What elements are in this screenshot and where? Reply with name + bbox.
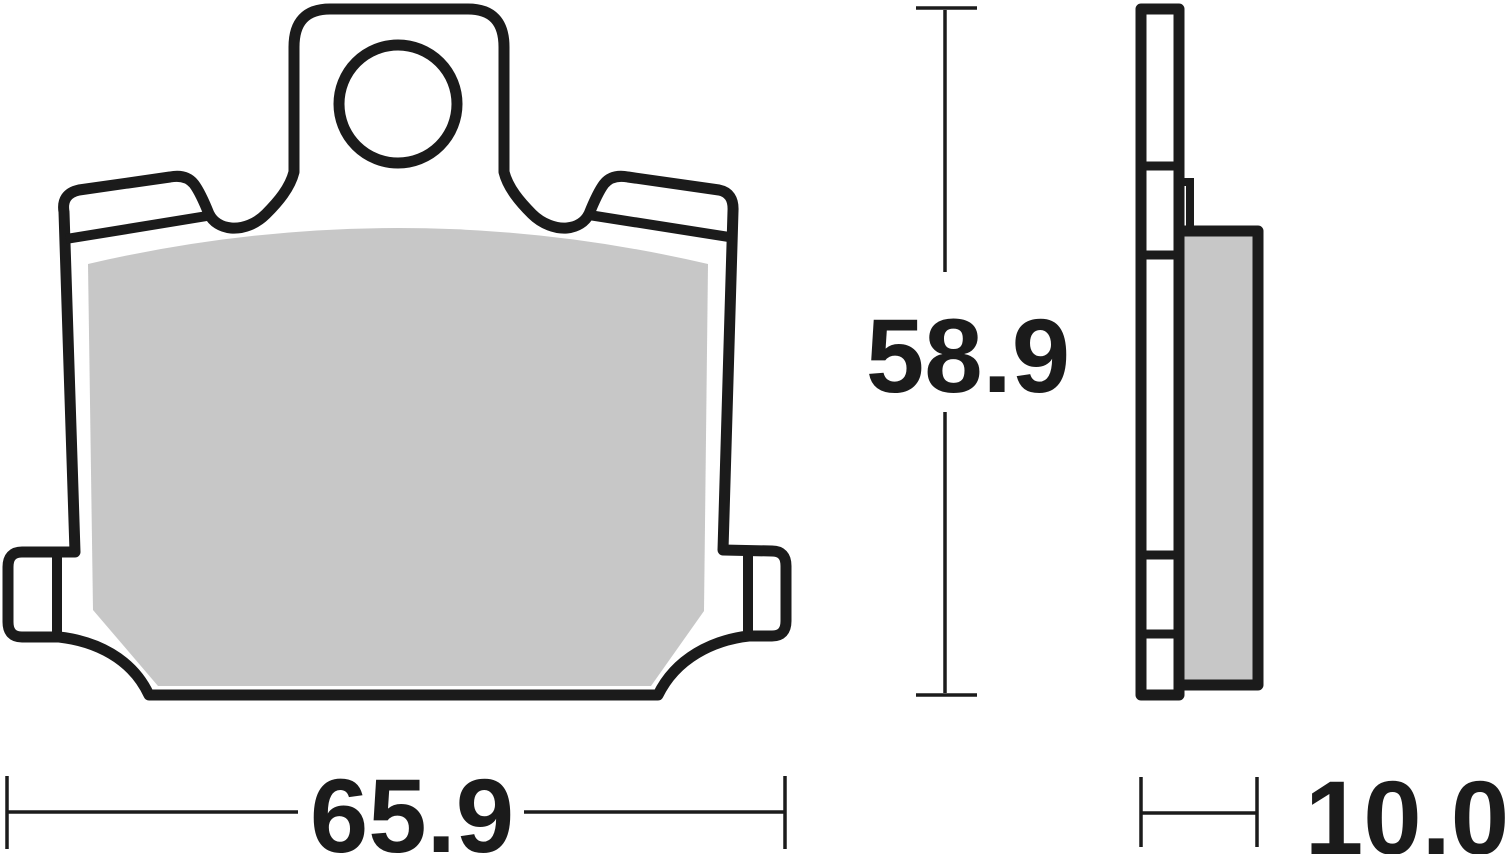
plate-top-edge-left	[66, 216, 207, 239]
friction-material-side	[1184, 231, 1258, 685]
dimension-height-label: 58.9	[866, 298, 1070, 415]
backing-plate-profile	[1141, 9, 1179, 695]
step-lip	[1184, 182, 1190, 229]
mounting-hole	[339, 45, 457, 163]
dimension-thickness: 10.0	[1141, 760, 1505, 854]
friction-material-front	[88, 228, 708, 686]
front-view	[8, 9, 786, 695]
dimension-height: 58.9	[866, 8, 1070, 695]
plate-top-edge-right	[589, 215, 729, 237]
dimension-thickness-label: 10.0	[1305, 760, 1505, 854]
side-view	[1136, 9, 1258, 695]
dimension-width: 65.9	[7, 758, 785, 854]
technical-drawing-canvas: 65.9 58.9 10.0	[0, 0, 1505, 854]
brake-pad-drawing: 65.9 58.9 10.0	[0, 0, 1505, 854]
dimension-width-label: 65.9	[310, 758, 514, 854]
